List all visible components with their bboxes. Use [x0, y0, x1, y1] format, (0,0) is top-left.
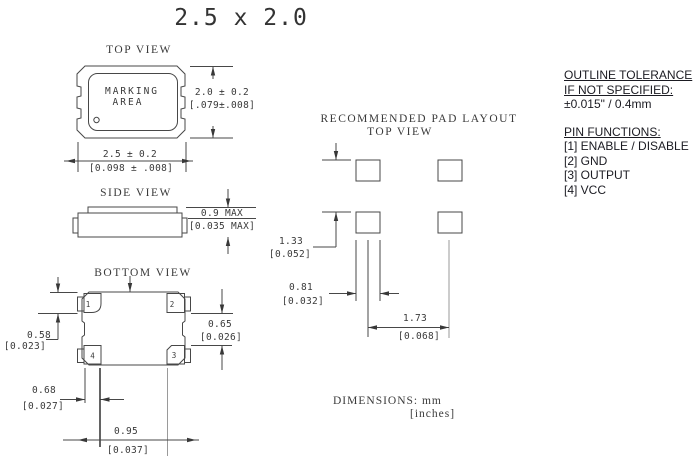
dim-height-inch: [.079±.008] — [189, 100, 255, 111]
side-view-lid — [88, 207, 177, 213]
notes-spacer — [564, 112, 696, 125]
bottom-view-label: BOTTOM VIEW — [94, 267, 192, 279]
pin-functions-heading: PIN FUNCTIONS: — [564, 125, 696, 140]
pad-layout-drawing: RECOMMENDED PAD LAYOUT TOP VIEW 1.33 [0.… — [269, 113, 518, 342]
dim-layout-horizontal-mm: 1.73 — [403, 313, 427, 324]
pin1-indicator-dot — [94, 117, 99, 122]
drawing-title: 2.5 x 2.0 — [174, 5, 308, 31]
dim-layout-pad-width-mm: 0.81 — [289, 282, 313, 293]
layout-horizontal-dimension: 1.73 [0.068] — [368, 313, 449, 342]
layout-pad-bottom-right — [438, 212, 462, 233]
side-view-drawing: SIDE VIEW 0.9 MAX [0.035 MAX] — [73, 187, 256, 254]
top-view-drawing: TOP VIEW MARKING AREA 2.0 ± 0.2 [.079±.0… — [64, 44, 255, 174]
layout-pad-bottom-left — [356, 212, 380, 233]
top-view-width-dimension: 2.5 ± 0.2 [0.098 ± .008] — [64, 142, 193, 174]
bottom-span-dimension: 0.95 [0.037] — [63, 426, 199, 456]
marking-area-text-line1: MARKING — [105, 86, 159, 97]
pad-number-1: 1 — [86, 300, 91, 309]
dim-side-inch: [0.035 MAX] — [189, 221, 255, 232]
pad-number-4: 4 — [90, 352, 95, 361]
bottom-pad-gap-dimension: 0.65 [0.026] — [191, 289, 242, 370]
dim-gap-inch: [0.026] — [200, 332, 242, 343]
layout-pad-top-left — [356, 160, 380, 181]
pad-number-2: 2 — [170, 300, 175, 309]
dimensions-note-line2: [inches] — [410, 408, 455, 420]
dim-offset-mm: 0.68 — [32, 385, 56, 396]
dim-side-mm: 0.9 MAX — [201, 208, 243, 219]
marking-area-text-line2: AREA — [113, 97, 144, 108]
pin-function-item-2: [2] GND — [564, 154, 696, 169]
layout-vertical-dimension: 1.33 [0.052] — [269, 212, 351, 260]
pad-layout-subtitle: TOP VIEW — [367, 126, 433, 138]
bottom-pad-1-tab — [78, 297, 85, 311]
pin-function-item-1: [1] ENABLE / DISABLE — [564, 139, 696, 154]
outline-tolerance-heading-line1: OUTLINE TOLERANCE — [564, 68, 696, 83]
dim-offset-inch: [0.027] — [22, 401, 64, 412]
bottom-pad-height-dimension: 0.58 [0.023] — [4, 277, 78, 352]
notes-panel: OUTLINE TOLERANCE IF NOT SPECIFIED: ±0.0… — [564, 68, 696, 197]
bottom-pad-4-tab — [78, 349, 85, 363]
dim-span-inch: [0.037] — [107, 445, 149, 456]
layout-pad-top-right — [438, 160, 462, 181]
dim-layout-pad-width-inch: [0.032] — [282, 296, 324, 307]
outline-tolerance-heading-line2: IF NOT SPECIFIED: — [564, 83, 696, 98]
outline-tolerance-value: ±0.015" / 0.4mm — [564, 97, 696, 112]
pad-layout-title: RECOMMENDED PAD LAYOUT — [321, 113, 518, 125]
pin-function-item-4: [4] VCC — [564, 183, 696, 198]
dim-height-mm: 2.0 ± 0.2 — [195, 87, 249, 98]
dim-layout-horizontal-inch: [0.068] — [398, 331, 440, 342]
dimensions-note-line1: DIMENSIONS: mm — [333, 395, 442, 407]
dim-pad-height-inch: [0.023] — [4, 341, 46, 352]
side-view-left-pad-tab — [73, 218, 78, 233]
dim-pad-height-mm: 0.58 — [27, 330, 51, 341]
bottom-view-drawing: BOTTOM VIEW 1 2 4 3 0.58 — [4, 267, 242, 456]
dim-span-mm: 0.95 — [114, 426, 138, 437]
top-view-height-dimension: 2.0 ± 0.2 [.079±.008] — [189, 67, 255, 139]
dim-width-mm: 2.5 ± 0.2 — [103, 149, 157, 160]
side-view-body — [78, 213, 182, 237]
pin-function-item-3: [3] OUTPUT — [564, 168, 696, 183]
bottom-offset-dimension: 0.68 [0.027] — [22, 385, 124, 412]
dimensions-note: DIMENSIONS: mm [inches] — [333, 395, 455, 420]
side-view-label: SIDE VIEW — [100, 187, 172, 199]
side-view-right-pad-tab — [182, 218, 187, 233]
pad-number-3: 3 — [172, 351, 177, 360]
side-view-height-dimension: 0.9 MAX [0.035 MAX] — [186, 189, 256, 254]
layout-pad-width-dimension: 0.81 [0.032] — [282, 282, 399, 307]
top-view-label: TOP VIEW — [106, 44, 172, 56]
dim-width-inch: [0.098 ± .008] — [89, 163, 173, 174]
dim-layout-vertical-inch: [0.052] — [269, 249, 311, 260]
drawing-sheet: 2.5 x 2.0 TOP VIEW MARKING AREA 2.0 ± 0.… — [0, 0, 697, 459]
dim-gap-mm: 0.65 — [208, 319, 232, 330]
dim-layout-vertical-mm: 1.33 — [279, 236, 303, 247]
